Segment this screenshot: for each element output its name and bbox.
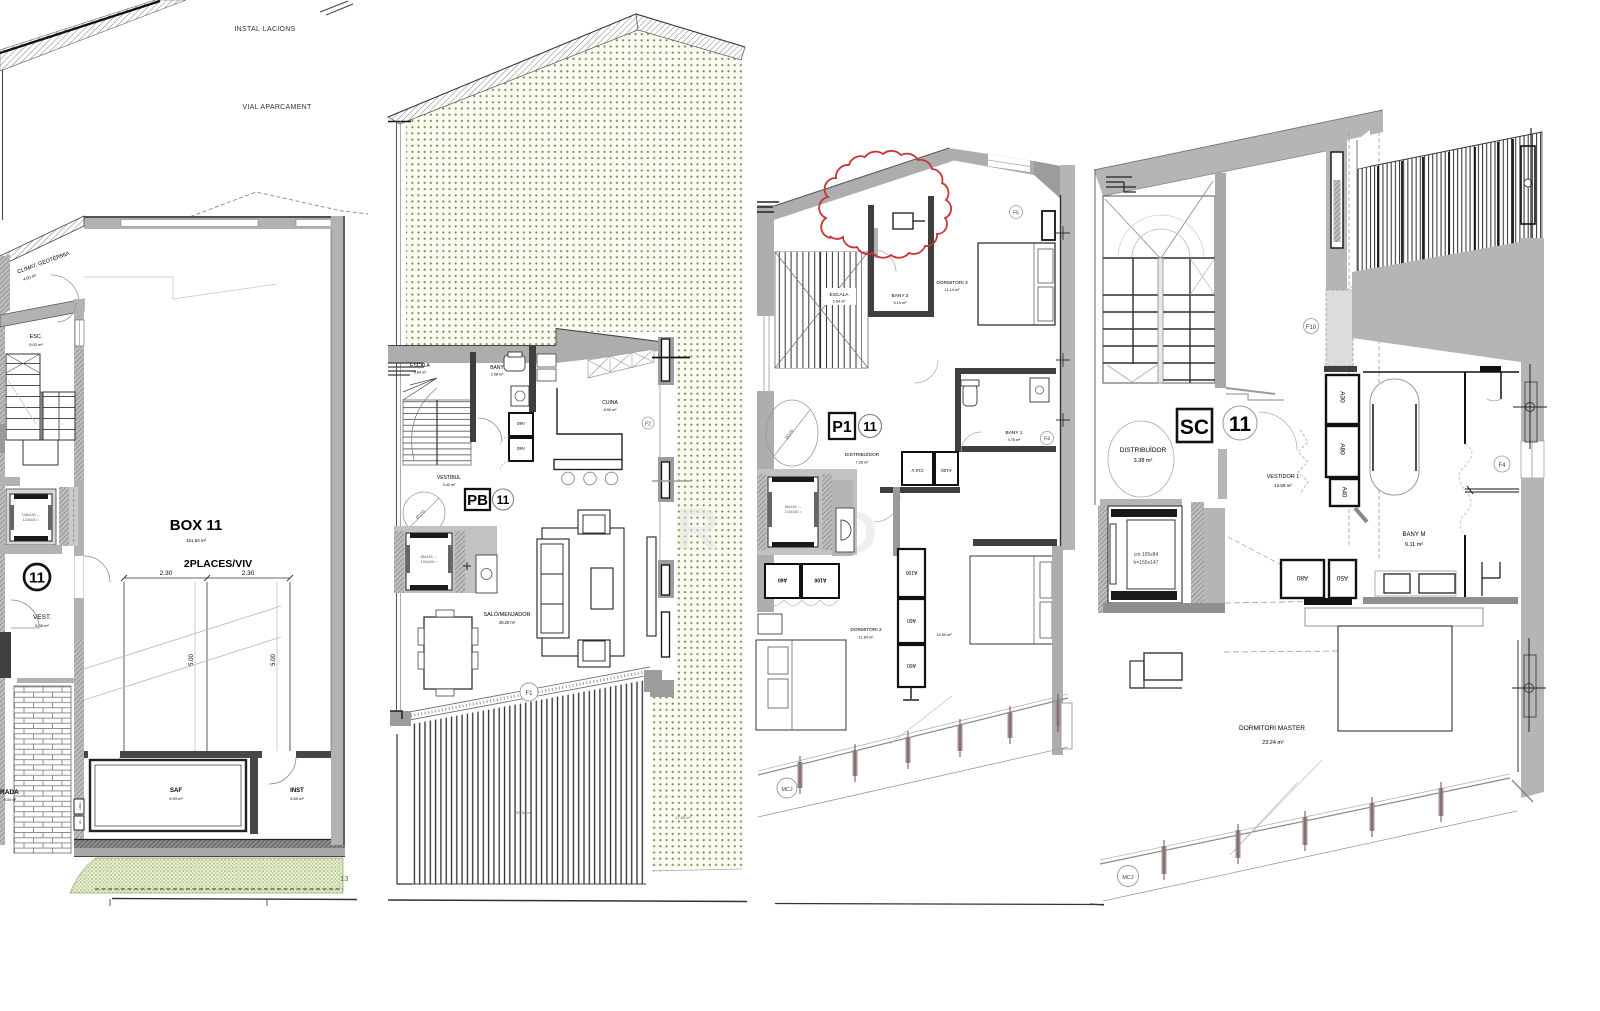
svg-text:BANY 2: BANY 2 xyxy=(892,293,909,299)
svg-text:134x150 ↕: 134x150 ↕ xyxy=(785,510,802,514)
svg-text:9.93 m²: 9.93 m² xyxy=(169,796,183,801)
svg-text:A60: A60 xyxy=(907,617,916,623)
svg-text:A80: A80 xyxy=(1296,574,1308,581)
svg-text:R: R xyxy=(676,496,719,563)
svg-text:DORMITORI 2: DORMITORI 2 xyxy=(850,627,882,633)
svg-text:9.02 m²: 9.02 m² xyxy=(29,342,43,347)
svg-text:cm 105x84: cm 105x84 xyxy=(1134,552,1159,558)
svg-text:F5: F5 xyxy=(1013,211,1019,217)
svg-text:VESTIDOR 1: VESTIDOR 1 xyxy=(1267,474,1300,480)
svg-text:F4: F4 xyxy=(1498,463,1506,469)
svg-text:8.90 m²: 8.90 m² xyxy=(604,408,618,412)
svg-text:MCJ: MCJ xyxy=(781,787,793,793)
svg-text:F1: F1 xyxy=(525,691,533,697)
svg-text:23.24 m²: 23.24 m² xyxy=(1262,740,1284,746)
svg-text:5.84 m²: 5.84 m² xyxy=(414,371,428,375)
svg-text:40.20 m²: 40.20 m² xyxy=(499,620,516,625)
svg-text:CUI.V: CUI.V xyxy=(911,468,923,473)
svg-text:SAF: SAF xyxy=(170,788,182,794)
svg-text:SALÓ/MENJADOR: SALÓ/MENJADOR xyxy=(483,611,530,618)
svg-text:F4: F4 xyxy=(1044,437,1050,443)
svg-text:A100: A100 xyxy=(814,577,826,583)
svg-text:h=150x147: h=150x147 xyxy=(1134,560,1159,566)
svg-text:DISTRIBUÏDOR: DISTRIBUÏDOR xyxy=(845,451,880,458)
svg-text:4.75 m²: 4.75 m² xyxy=(1008,438,1022,442)
svg-text:13.59 m²: 13.59 m² xyxy=(1274,483,1292,488)
svg-text:ESCALA: ESCALA xyxy=(830,292,850,298)
svg-text:VIAL APARCAMENT: VIAL APARCAMENT xyxy=(242,104,311,111)
svg-text:39.34 m²: 39.34 m² xyxy=(516,810,532,815)
svg-text:11: 11 xyxy=(1229,413,1252,436)
svg-text:5.64 m²: 5.64 m² xyxy=(833,300,847,304)
svg-text:MCJ: MCJ xyxy=(1122,875,1134,881)
svg-text:2.30: 2.30 xyxy=(242,570,255,577)
svg-text:11: 11 xyxy=(497,493,510,507)
svg-text:A1: A1 xyxy=(78,820,82,824)
svg-text:F2: F2 xyxy=(645,422,651,428)
svg-text:A40: A40 xyxy=(1341,487,1347,498)
svg-text:INST: INST xyxy=(290,788,304,794)
svg-text:5.00 m²: 5.00 m² xyxy=(4,798,17,802)
svg-text:INSTAL·LACIONS: INSTAL·LACIONS xyxy=(234,26,295,33)
svg-text:A60: A60 xyxy=(517,446,526,451)
svg-text:BANY 1: BANY 1 xyxy=(1006,430,1023,436)
svg-text:151.83 m²: 151.83 m² xyxy=(186,538,207,543)
svg-text:11.14 m²: 11.14 m² xyxy=(945,288,960,292)
svg-text:5.50 m²: 5.50 m² xyxy=(290,796,304,801)
svg-text:SC: SC xyxy=(1180,416,1209,439)
svg-text:BANY M: BANY M xyxy=(1403,532,1426,538)
svg-text:6.38 m²: 6.38 m² xyxy=(35,623,49,628)
svg-text:5.00: 5.00 xyxy=(189,654,195,666)
svg-text:13: 13 xyxy=(340,874,348,883)
svg-text:BANY: BANY xyxy=(490,365,504,371)
svg-text:10.90 m²: 10.90 m² xyxy=(937,633,953,637)
svg-text:DISTRIBUÏDOR: DISTRIBUÏDOR xyxy=(1120,446,1167,454)
svg-text:A50: A50 xyxy=(1336,574,1348,581)
svg-text:A60: A60 xyxy=(517,421,526,426)
svg-text:134x150 ↕: 134x150 ↕ xyxy=(421,560,438,564)
svg-text:17.85 m²: 17.85 m² xyxy=(675,815,691,820)
svg-text:146x150 ↔: 146x150 ↔ xyxy=(22,513,40,517)
svg-text:VESTÍBUL: VESTÍBUL xyxy=(437,474,461,481)
svg-text:11: 11 xyxy=(29,570,45,587)
svg-text:5.00: 5.00 xyxy=(271,654,277,666)
svg-text:2PLACES/VIV: 2PLACES/VIV xyxy=(184,558,252,570)
svg-text:ESCALA: ESCALA xyxy=(410,363,430,369)
svg-text:9.11 m²: 9.11 m² xyxy=(1405,542,1423,548)
svg-text:CUINA: CUINA xyxy=(602,400,618,406)
svg-text:11.84 m²: 11.84 m² xyxy=(859,636,874,640)
svg-text:134x150 ↕: 134x150 ↕ xyxy=(23,518,40,522)
svg-text:5.10 m²: 5.10 m² xyxy=(894,301,908,305)
svg-text:3.42 m²: 3.42 m² xyxy=(443,483,457,487)
svg-text:F10: F10 xyxy=(1306,325,1317,331)
svg-text:11: 11 xyxy=(863,419,877,434)
svg-text:2.58 m²: 2.58 m² xyxy=(491,373,505,377)
svg-text:2.30: 2.30 xyxy=(160,570,173,577)
svg-text:P1: P1 xyxy=(832,419,852,436)
svg-text:85x150 ↔: 85x150 ↔ xyxy=(421,555,437,559)
svg-text:A60: A60 xyxy=(778,577,787,583)
svg-text:DORMITORI 3: DORMITORI 3 xyxy=(936,280,968,286)
svg-text:7.26 m²: 7.26 m² xyxy=(856,461,870,465)
svg-text:BOX 11: BOX 11 xyxy=(170,517,223,534)
svg-text:DORMITORI MASTER: DORMITORI MASTER xyxy=(1239,725,1305,732)
svg-text:A50: A50 xyxy=(907,662,916,668)
svg-text:RADA: RADA xyxy=(0,789,19,796)
svg-text:3.38 m²: 3.38 m² xyxy=(1134,458,1153,464)
svg-text:A100: A100 xyxy=(941,468,952,473)
svg-text:PB: PB xyxy=(467,492,488,509)
svg-text:A100: A100 xyxy=(905,569,917,575)
svg-text:ESC.: ESC. xyxy=(30,334,43,340)
svg-text:Hidro: Hidro xyxy=(78,802,82,810)
svg-text:85x150 ↔: 85x150 ↔ xyxy=(785,505,801,509)
svg-text:A80: A80 xyxy=(1339,443,1346,455)
svg-text:A30: A30 xyxy=(1339,391,1346,403)
